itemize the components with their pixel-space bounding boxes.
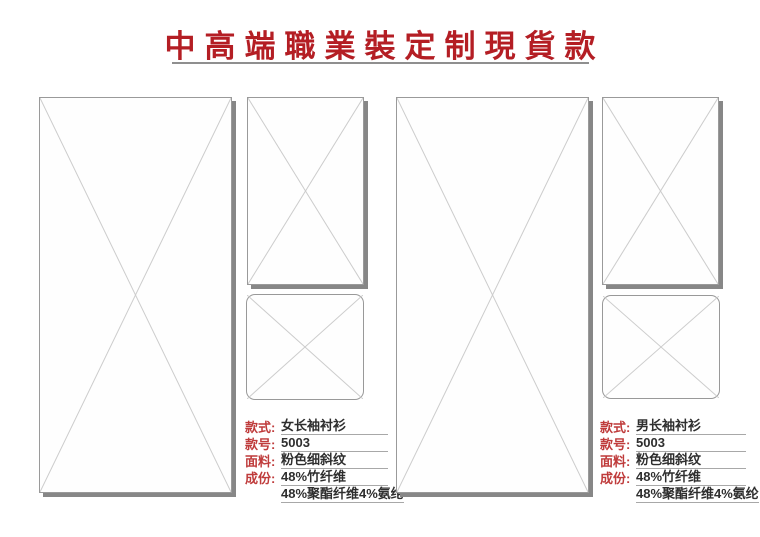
detail-label: 款号: (245, 437, 281, 452)
placeholder-cross-icon (40, 98, 231, 492)
left-product-main-image-placeholder (39, 97, 232, 493)
detail-label: 面料: (600, 454, 636, 469)
detail-value: 5003 (636, 435, 746, 452)
left-product-detail-image-placeholder (247, 97, 364, 285)
detail-value: 粉色细斜纹 (636, 452, 746, 469)
detail-label: 款号: (600, 437, 636, 452)
detail-label: 面料: (245, 454, 281, 469)
detail-row-style: 款式: 女长袖衬衫 (245, 418, 388, 435)
left-product-fabric-image-placeholder (246, 294, 364, 400)
detail-row-style-no: 款号: 5003 (245, 435, 388, 452)
detail-value: 5003 (281, 435, 388, 452)
detail-value: 女长袖衬衫 (281, 418, 388, 435)
detail-value: 48%竹纤维 (636, 469, 746, 486)
detail-row-fabric: 面料: 粉色细斜纹 (600, 452, 746, 469)
detail-row-composition: 成份: 48%竹纤维 (600, 469, 746, 486)
detail-label: 成份: (245, 471, 281, 486)
placeholder-cross-icon (603, 98, 718, 284)
placeholder-cross-icon (603, 296, 719, 398)
placeholder-cross-icon (247, 295, 363, 399)
detail-label: 成份: (600, 471, 636, 486)
detail-value: 48%竹纤维 (281, 469, 388, 486)
placeholder-cross-icon (397, 98, 588, 492)
detail-value: 粉色细斜纹 (281, 452, 388, 469)
right-product-details: 款式: 男长袖衬衫 款号: 5003 面料: 粉色细斜纹 成份: 48%竹纤维 … (600, 418, 746, 503)
right-product-detail-image-placeholder (602, 97, 719, 285)
placeholder-cross-icon (248, 98, 363, 284)
detail-row-composition-cont: 48%聚酯纤维4%氨纶 (600, 486, 746, 503)
title-underline (172, 62, 589, 64)
detail-row-composition: 成份: 48%竹纤维 (245, 469, 388, 486)
catalog-page: 中高端職業裝定制現貨款 款式: 女长袖衬衫 款号: 5003 面料: 粉 (0, 0, 760, 537)
detail-row-style: 款式: 男长袖衬衫 (600, 418, 746, 435)
detail-row-style-no: 款号: 5003 (600, 435, 746, 452)
detail-label: 款式: (600, 420, 636, 435)
right-product-main-image-placeholder (396, 97, 589, 493)
page-title: 中高端職業裝定制現貨款 (0, 21, 760, 66)
detail-row-fabric: 面料: 粉色细斜纹 (245, 452, 388, 469)
detail-label: 款式: (245, 420, 281, 435)
left-product-details: 款式: 女长袖衬衫 款号: 5003 面料: 粉色细斜纹 成份: 48%竹纤维 … (245, 418, 388, 503)
detail-value: 48%聚酯纤维4%氨纶 (636, 486, 759, 503)
detail-row-composition-cont: 48%聚酯纤维4%氨纶 (245, 486, 388, 503)
detail-value: 48%聚酯纤维4%氨纶 (281, 486, 404, 503)
detail-value: 男长袖衬衫 (636, 418, 746, 435)
right-product-fabric-image-placeholder (602, 295, 720, 399)
